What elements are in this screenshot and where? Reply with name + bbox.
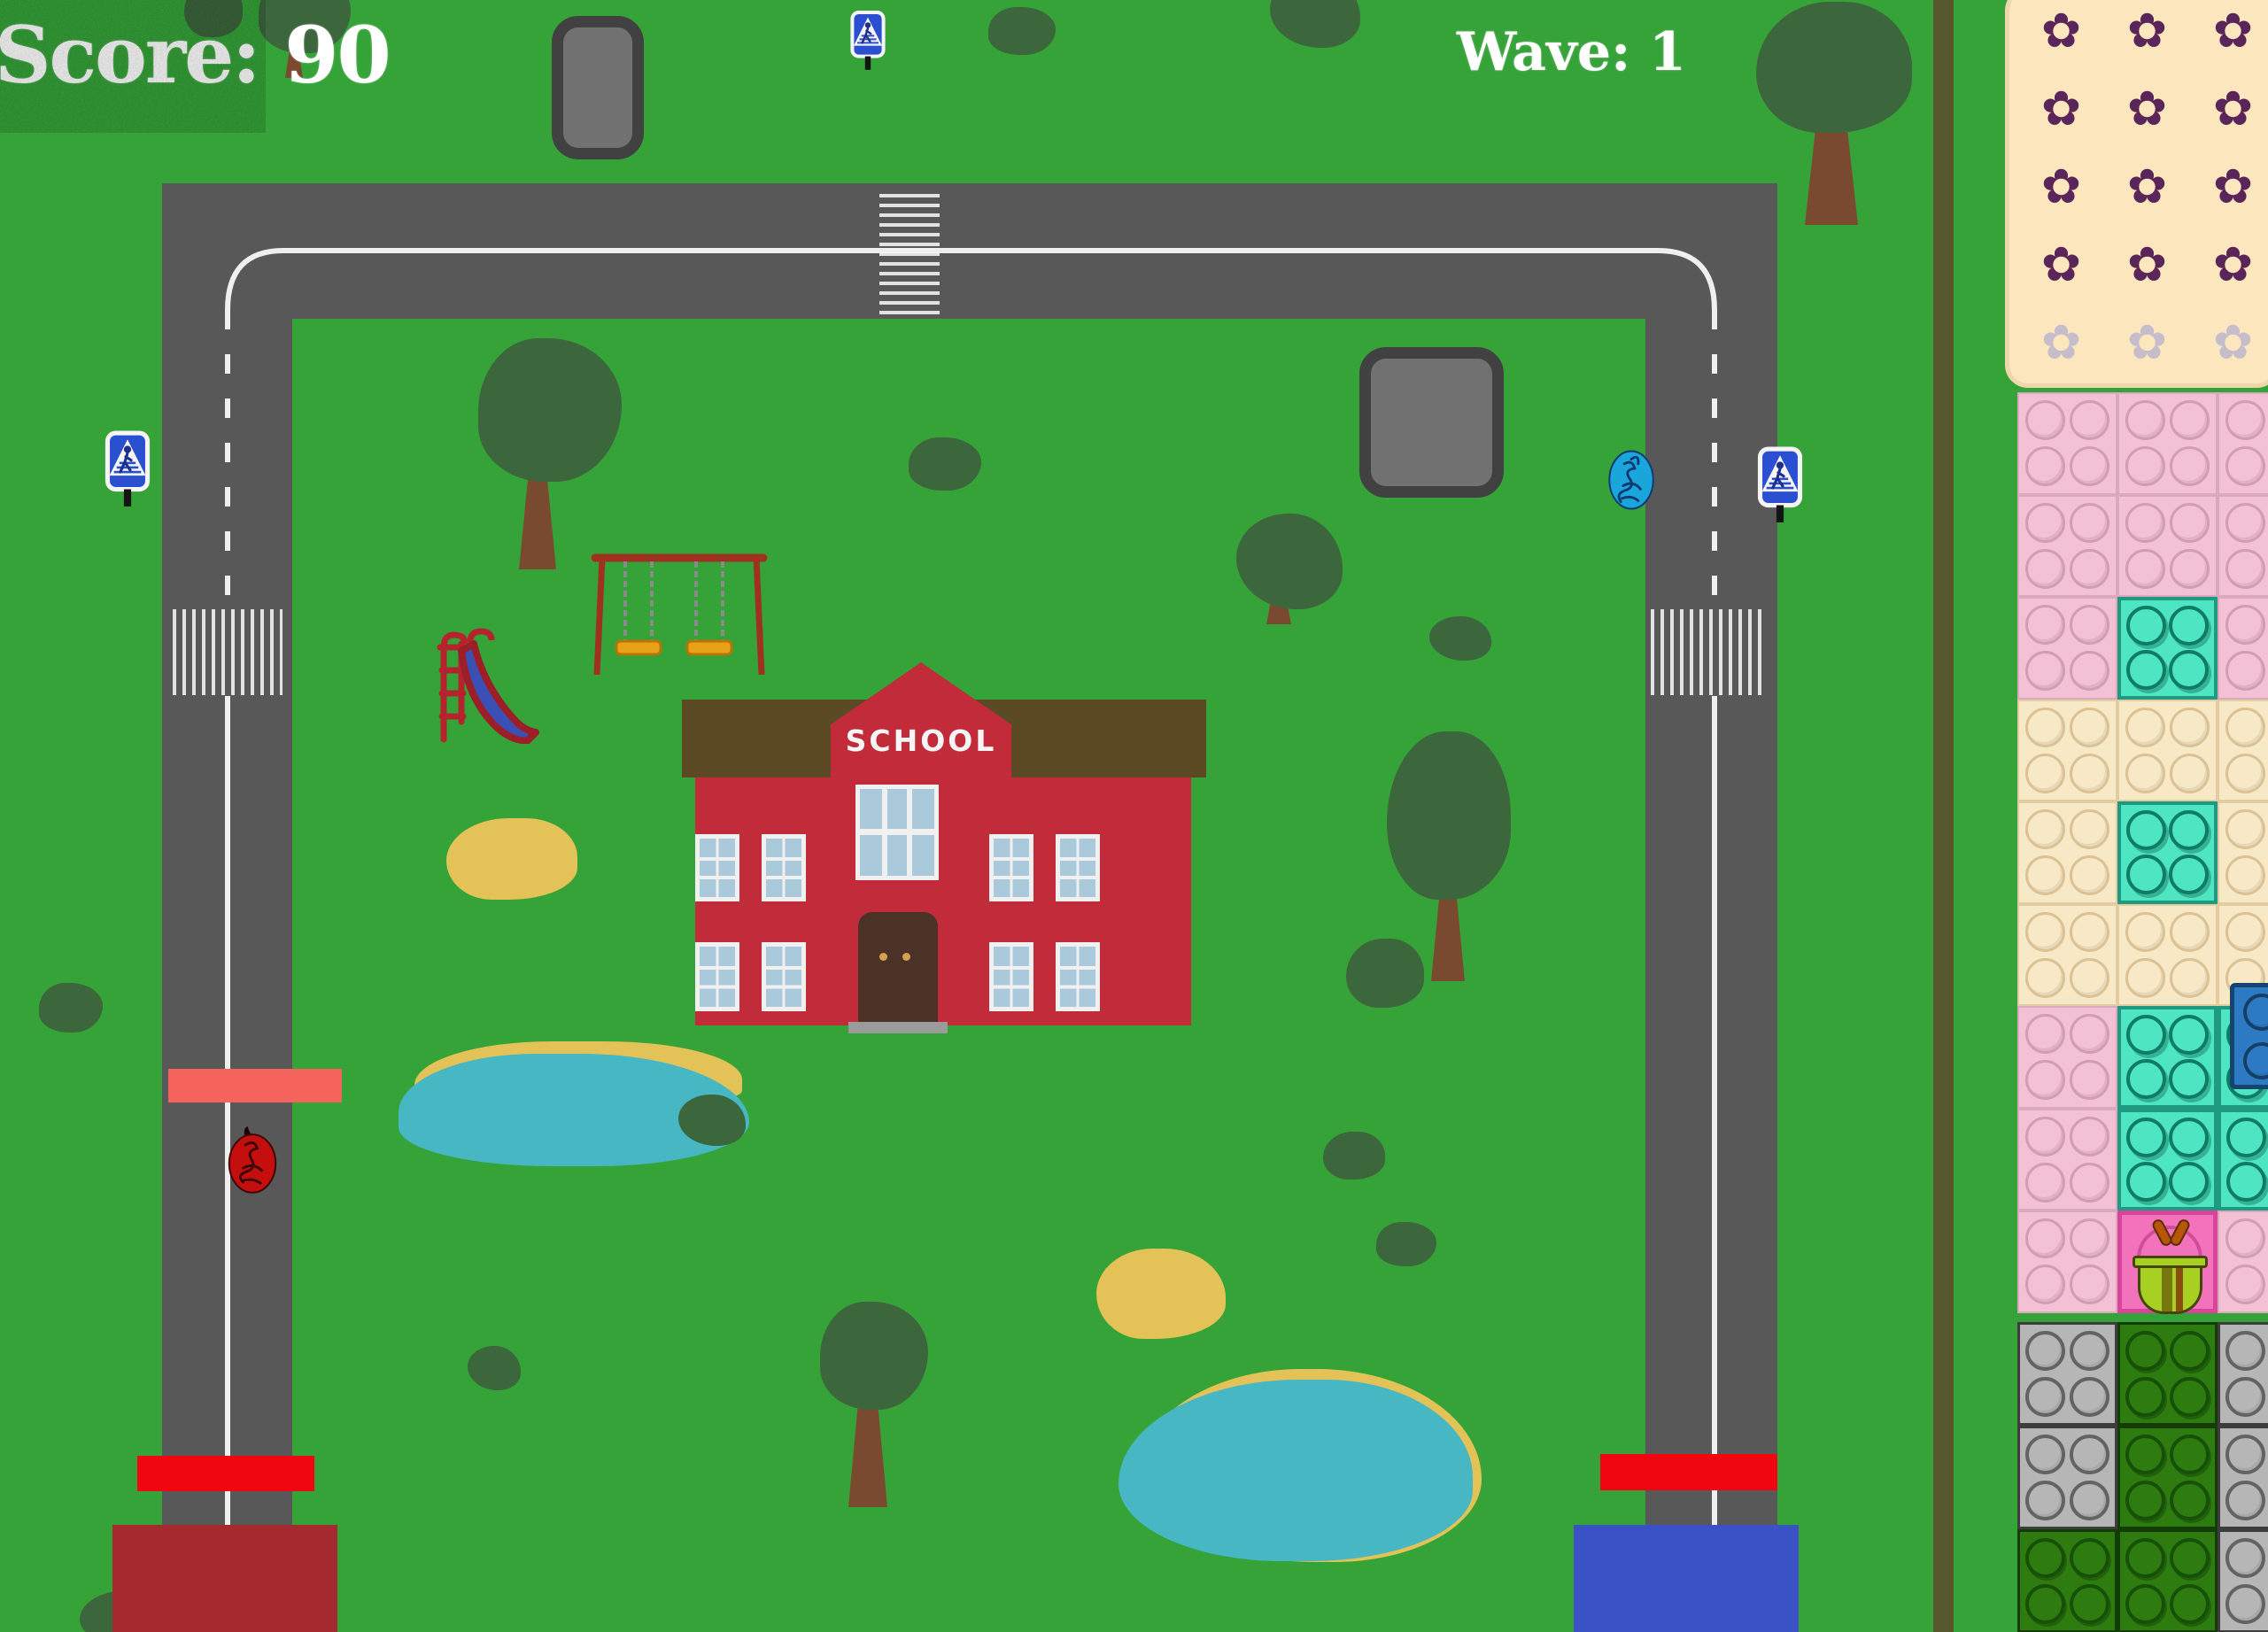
- brick-stud: [2070, 446, 2109, 486]
- brick-stud: [2025, 1481, 2065, 1520]
- flower-icon: ✿: [2213, 85, 2253, 133]
- gate-health-bar-left: [137, 1456, 314, 1491]
- brick-stud: [2025, 912, 2065, 952]
- flower-icon: ✿: [2041, 163, 2081, 211]
- brick-stud: [2170, 1435, 2210, 1474]
- brick-stud: [2125, 400, 2165, 440]
- brick-stud: [2125, 1481, 2165, 1520]
- brick-tile-cream[interactable]: [2017, 904, 2117, 1007]
- crosswalk: [879, 188, 940, 314]
- brick-stud: [2126, 810, 2166, 850]
- brick-stud: [2125, 912, 2165, 952]
- bush: [39, 983, 103, 1033]
- brick-stud: [2170, 400, 2210, 440]
- brick-stud: [2025, 708, 2065, 747]
- brick-tile-teal[interactable]: [2218, 1109, 2268, 1211]
- flower-icon: ✿: [2127, 241, 2167, 289]
- brick-stud: [2025, 1435, 2065, 1474]
- red-base: [112, 1525, 337, 1632]
- flower-icon: ✿: [2213, 319, 2253, 367]
- brick-stud: [2025, 1014, 2065, 1054]
- brick-stud: [2169, 1015, 2209, 1055]
- swing-set: [590, 549, 769, 682]
- school-window: [989, 834, 1033, 901]
- bush: [1376, 1222, 1436, 1266]
- brick-stud: [2070, 605, 2109, 645]
- brick-tile-pink[interactable]: [2218, 495, 2268, 598]
- brick-stud: [2170, 1331, 2210, 1371]
- brick-stud: [2170, 1377, 2210, 1417]
- brick-tile-pink[interactable]: [2218, 1210, 2268, 1313]
- school-gable: SCHOOL: [831, 662, 1011, 777]
- brick-tile-pink[interactable]: [2017, 392, 2117, 495]
- flower-icon: ✿: [2127, 319, 2167, 367]
- brick-stud: [2125, 503, 2165, 543]
- brick-stud: [2025, 446, 2065, 486]
- brick-stud: [2226, 1162, 2266, 1202]
- brick-stud: [2170, 1584, 2210, 1624]
- brick-tile-gray[interactable]: [2218, 1529, 2268, 1632]
- brick-stud: [2070, 708, 2109, 747]
- school-window: [695, 834, 739, 901]
- tower-pad-1[interactable]: [552, 16, 644, 159]
- brick-stud: [2170, 708, 2210, 747]
- brick-stud: [2025, 1163, 2065, 1203]
- brick-stud: [2225, 1265, 2265, 1304]
- brick-stud: [2025, 754, 2065, 793]
- brick-stud: [2070, 1584, 2109, 1624]
- brick-stud: [2025, 1218, 2065, 1258]
- brick-stud: [2126, 1015, 2166, 1055]
- brick-stud: [2025, 1060, 2065, 1100]
- game-viewport: SCHOOL: [0, 0, 2268, 1632]
- brick-stud: [2169, 1118, 2209, 1157]
- brick-stud: [2225, 912, 2265, 952]
- brick-stud: [2170, 503, 2210, 543]
- brick-stud: [2125, 1584, 2165, 1624]
- gift-tile[interactable]: [2117, 1210, 2218, 1313]
- flower-icon: ✿: [2041, 319, 2081, 367]
- brick-stud: [2125, 958, 2165, 998]
- flower-icon: ✿: [2213, 241, 2253, 289]
- brick-stud: [2070, 651, 2109, 691]
- pond: [1119, 1380, 1473, 1561]
- brick-stud: [2025, 1265, 2065, 1304]
- school-window: [989, 942, 1033, 1011]
- flower-icon: ✿: [2127, 85, 2167, 133]
- brick-stud: [2226, 1118, 2266, 1157]
- brick-tile-teal[interactable]: [2117, 1006, 2218, 1109]
- brick-stud: [2225, 754, 2265, 793]
- brick-stud: [2125, 754, 2165, 793]
- brick-stud: [2170, 549, 2210, 589]
- enemy-blue-kid: [1608, 450, 1654, 510]
- brick-stud: [2070, 855, 2109, 895]
- gift-icon: [2133, 1222, 2208, 1311]
- enemy-health-bar: [168, 1069, 342, 1102]
- brick-stud: [2225, 651, 2265, 691]
- brick-stud: [2125, 708, 2165, 747]
- brick-stud: [2070, 754, 2109, 793]
- road-right: [1645, 183, 1777, 1632]
- crosswalk-sign-icon: [1757, 446, 1803, 524]
- school-window-large: [855, 785, 939, 880]
- brick-stud: [2025, 1117, 2065, 1156]
- brick-stud: [2225, 446, 2265, 486]
- school-window: [1056, 834, 1100, 901]
- flower-icon: ✿: [2127, 163, 2167, 211]
- door-knob: [902, 953, 910, 961]
- brick-stud: [2070, 1481, 2109, 1520]
- bush: [988, 7, 1056, 55]
- tree-canopy: [1270, 0, 1360, 48]
- flower-icon: ✿: [2041, 7, 2081, 55]
- brick-stud: [2025, 1538, 2065, 1578]
- brick-tile-gray[interactable]: [2017, 1322, 2117, 1426]
- brick-tile-dgreen[interactable]: [2117, 1322, 2218, 1426]
- brick-stud: [2125, 1331, 2165, 1371]
- brick-tile-cream[interactable]: [2117, 700, 2218, 802]
- brick-tile-pink[interactable]: [2117, 392, 2218, 495]
- brick-stud: [2070, 1265, 2109, 1304]
- brick-stud: [2126, 1118, 2166, 1157]
- brick-tile-pink[interactable]: [2017, 1006, 2117, 1109]
- brick-stud: [2225, 1218, 2265, 1258]
- brick-stud: [2025, 855, 2065, 895]
- brick-stud: [2225, 549, 2265, 589]
- brick-stud: [2225, 1481, 2265, 1520]
- brick-stud: [2225, 1584, 2265, 1624]
- brick-tile-gray[interactable]: [2017, 1426, 2117, 1529]
- flower-panel: ✿✿✿✿✿✿✿✿✿✿✿✿✿✿✿: [2005, 0, 2268, 388]
- tree-canopy: [1236, 514, 1343, 609]
- brick-stud: [2126, 606, 2166, 646]
- brick-stud: [2025, 1377, 2065, 1417]
- brick-stud: [2170, 754, 2210, 793]
- brick-stud: [2243, 994, 2268, 1031]
- brick-stud: [2126, 855, 2166, 894]
- tree-canopy: [478, 338, 622, 482]
- brick-stud: [2070, 1435, 2109, 1474]
- brick-stud: [2070, 549, 2109, 589]
- brick-tile-pink[interactable]: [2017, 1210, 2117, 1313]
- brick-stud: [2225, 605, 2265, 645]
- bush: [1323, 1132, 1385, 1180]
- brick-stud: [2169, 606, 2209, 646]
- brick-stud: [2070, 1163, 2109, 1203]
- brick-stud: [2025, 605, 2065, 645]
- flower-icon: ✿: [2041, 241, 2081, 289]
- brick-tile-teal[interactable]: [2117, 1109, 2218, 1211]
- tower-pad-2[interactable]: [1359, 347, 1504, 498]
- tree-canopy: [820, 1302, 928, 1410]
- crosswalk-sign-icon: [850, 0, 886, 81]
- school-sign-text: SCHOOL: [831, 723, 1011, 758]
- brick-stud: [2170, 912, 2210, 952]
- brick-tile-pink[interactable]: [2017, 597, 2117, 700]
- brick-stud: [2170, 958, 2210, 998]
- brick-tile-gray[interactable]: [2218, 1322, 2268, 1426]
- brick-stud: [2025, 549, 2065, 589]
- brick-stud: [2169, 810, 2209, 850]
- brick-stud: [2169, 1059, 2209, 1099]
- brick-stud: [2125, 549, 2165, 589]
- brick-stud: [2225, 1538, 2265, 1578]
- brick-stud: [2225, 708, 2265, 747]
- brick-stud: [2126, 1059, 2166, 1099]
- bush: [1429, 616, 1491, 661]
- brick-stud: [2025, 1331, 2065, 1371]
- brick-stud: [2025, 809, 2065, 849]
- brick-tile-dgreen[interactable]: [2017, 1529, 2117, 1632]
- score-label: Score: 90: [0, 9, 390, 101]
- brick-stud: [2070, 809, 2109, 849]
- brick-stud: [2169, 1162, 2209, 1202]
- brick-stud: [2070, 958, 2109, 998]
- brick-stud: [2170, 1538, 2210, 1578]
- brick-tile-cream[interactable]: [2017, 700, 2117, 802]
- door-knob: [879, 953, 887, 961]
- brick-stud: [2070, 1218, 2109, 1258]
- sand-patch: [446, 818, 577, 900]
- school-step: [848, 1022, 948, 1033]
- brick-stud: [2070, 1117, 2109, 1156]
- crosswalk-sign-icon: [104, 430, 151, 508]
- flower-icon: ✿: [2127, 7, 2167, 55]
- brick-tile-gray[interactable]: [2218, 1426, 2268, 1529]
- brick-stud: [2169, 855, 2209, 894]
- playground-slide: [431, 615, 545, 744]
- bush: [909, 437, 981, 491]
- brick-stud: [2225, 809, 2265, 849]
- tree-canopy: [1756, 2, 1912, 133]
- brick-tile-teal[interactable]: [2117, 801, 2218, 904]
- school-window: [762, 834, 806, 901]
- brick-tile-dgreen[interactable]: [2117, 1529, 2218, 1632]
- sand-patch: [1096, 1249, 1226, 1339]
- flower-icon: ✿: [2213, 163, 2253, 211]
- brick-stud: [2170, 1481, 2210, 1520]
- brick-stud: [2070, 1014, 2109, 1054]
- school-door: [858, 912, 938, 1022]
- brick-stud: [2169, 650, 2209, 690]
- crosswalk: [1651, 609, 1768, 695]
- dirt-path: [1933, 0, 1954, 1632]
- brick-tile-cream[interactable]: [2218, 801, 2268, 904]
- brick-stud: [2125, 446, 2165, 486]
- brick-stud: [2070, 912, 2109, 952]
- flower-icon: ✿: [2213, 7, 2253, 55]
- brick-tile-dgreen[interactable]: [2117, 1426, 2218, 1529]
- brick-stud: [2225, 1435, 2265, 1474]
- brick-stud: [2225, 400, 2265, 440]
- gate-health-bar-right: [1600, 1454, 1777, 1490]
- brick-tile-teal[interactable]: [2117, 597, 2218, 700]
- brick-tile-cream[interactable]: [2218, 700, 2268, 802]
- brick-tile-cream[interactable]: [2117, 904, 2218, 1007]
- brick-stud: [2225, 1377, 2265, 1417]
- brick-stud: [2225, 503, 2265, 543]
- road-left: [162, 183, 292, 1632]
- brick-stud: [2025, 958, 2065, 998]
- brick-tile-pink[interactable]: [2017, 495, 2117, 598]
- bush: [1346, 939, 1424, 1008]
- wave-label: Wave: 1: [1457, 21, 1686, 83]
- blue-brick[interactable]: [2230, 983, 2268, 1089]
- brick-stud: [2243, 1042, 2268, 1079]
- brick-stud: [2126, 1162, 2166, 1202]
- brick-stud: [2025, 1584, 2065, 1624]
- crosswalk: [173, 609, 283, 695]
- brick-grid-upper: [2017, 392, 2268, 1313]
- brick-stud: [2225, 855, 2265, 895]
- brick-tile-cream[interactable]: [2017, 801, 2117, 904]
- brick-stud: [2070, 400, 2109, 440]
- brick-stud: [2125, 1538, 2165, 1578]
- brick-stud: [2025, 503, 2065, 543]
- brick-stud: [2025, 400, 2065, 440]
- flower-grid: ✿✿✿✿✿✿✿✿✿✿✿✿✿✿✿: [2018, 0, 2268, 383]
- brick-tile-pink[interactable]: [2218, 392, 2268, 495]
- school-window: [762, 942, 806, 1011]
- brick-stud: [2070, 1377, 2109, 1417]
- brick-stud: [2025, 651, 2065, 691]
- flower-icon: ✿: [2041, 85, 2081, 133]
- school-window: [695, 942, 739, 1011]
- brick-stud: [2070, 1060, 2109, 1100]
- tree-canopy: [1387, 731, 1511, 900]
- bush: [468, 1346, 521, 1390]
- brick-tile-pink[interactable]: [2117, 495, 2218, 598]
- brick-stud: [2126, 650, 2166, 690]
- brick-tile-pink[interactable]: [2017, 1109, 2117, 1211]
- brick-stud: [2170, 446, 2210, 486]
- road-top: [162, 183, 1777, 319]
- brick-tile-pink[interactable]: [2218, 597, 2268, 700]
- enemy-red-kid: [227, 1126, 278, 1194]
- brick-stud: [2225, 1331, 2265, 1371]
- school-window: [1056, 942, 1100, 1011]
- brick-grid-lower: [2017, 1322, 2268, 1632]
- brick-stud: [2070, 1538, 2109, 1578]
- brick-stud: [2125, 1435, 2165, 1474]
- brick-stud: [2070, 503, 2109, 543]
- brick-stud: [2070, 1331, 2109, 1371]
- brick-stud: [2125, 1377, 2165, 1417]
- blue-base: [1574, 1525, 1799, 1632]
